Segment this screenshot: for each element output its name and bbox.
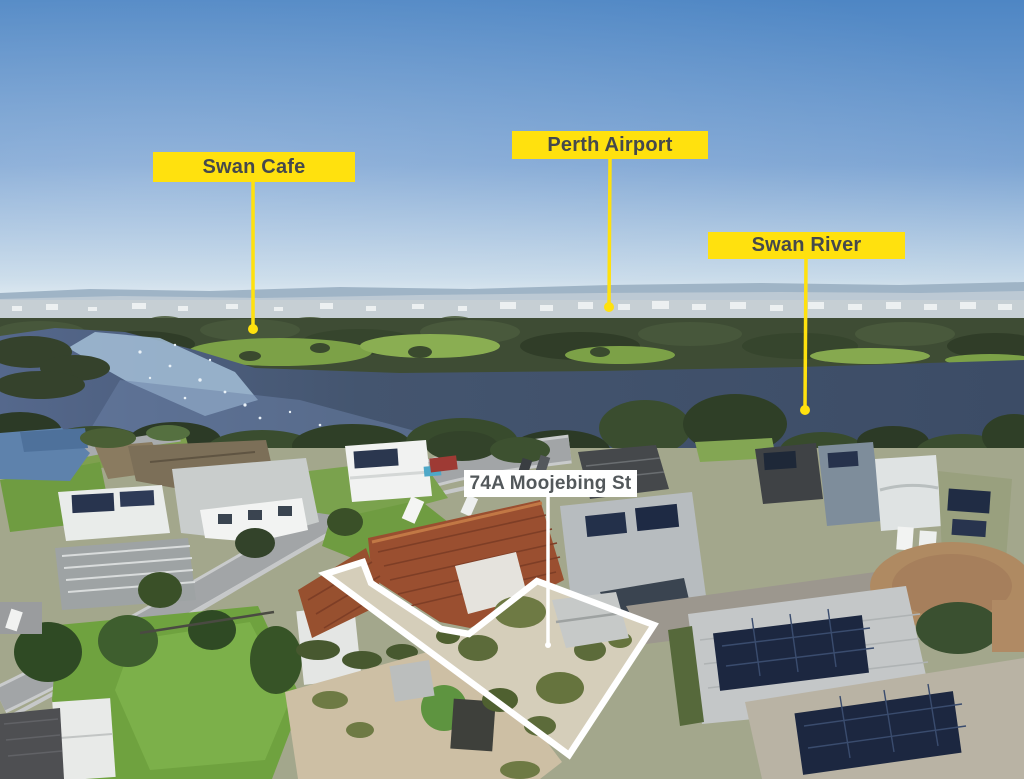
solar-panels xyxy=(763,451,796,470)
trees xyxy=(916,602,1000,654)
solar-panels xyxy=(635,504,679,531)
label-swan-cafe: Swan Cafe xyxy=(153,152,355,182)
solar-panels xyxy=(951,519,986,537)
window xyxy=(278,506,292,516)
white-car xyxy=(896,526,914,550)
label-swan-river: Swan River xyxy=(708,232,905,259)
aerial-property-photo: Swan Cafe Perth Airport Swan River 74A M… xyxy=(0,0,1024,779)
solar-panels xyxy=(72,493,115,513)
label-property-address: 74A Moojebing St xyxy=(464,470,637,497)
window xyxy=(248,510,262,520)
solar-panels xyxy=(120,490,155,507)
window xyxy=(218,514,232,524)
solar-panels xyxy=(947,489,990,514)
solar-panels xyxy=(828,451,859,468)
house-roof-grey2 xyxy=(0,602,42,634)
solar-panels xyxy=(353,448,398,468)
label-perth-airport: Perth Airport xyxy=(512,131,708,159)
house-roof-white2 xyxy=(875,455,942,531)
solar-panels xyxy=(585,512,627,537)
house-roof-blue2 xyxy=(20,428,88,452)
grey-shed xyxy=(389,660,434,702)
brick-paving xyxy=(992,600,1024,652)
aerial-photo xyxy=(0,0,1024,779)
